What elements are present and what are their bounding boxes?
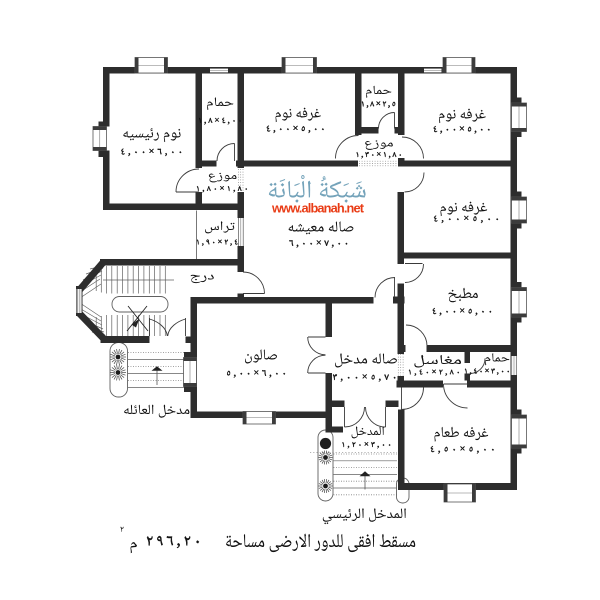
svg-text:www.albanah.net: www.albanah.net (271, 201, 365, 216)
